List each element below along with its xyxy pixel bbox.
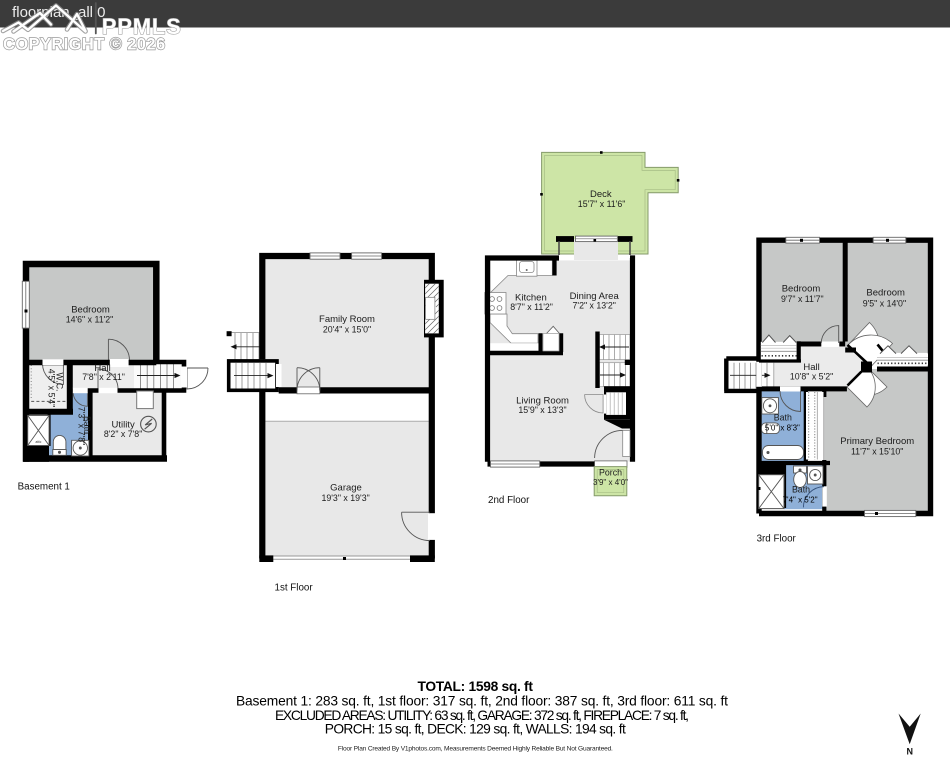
svg-text:20'4" x 15'0": 20'4" x 15'0"	[323, 325, 371, 335]
svg-text:4'5" x 5'4": 4'5" x 5'4"	[47, 369, 57, 407]
svg-text:COPYRIGHT © 2026: COPYRIGHT © 2026	[3, 35, 166, 53]
svg-text:Bedroom: Bedroom	[866, 288, 905, 299]
svg-text:19'3" x 19'3": 19'3" x 19'3"	[321, 493, 369, 503]
svg-text:7'4" x 5'2": 7'4" x 5'2"	[783, 495, 818, 504]
svg-text:Porch: Porch	[599, 468, 622, 478]
svg-text:8'2" x 7'8": 8'2" x 7'8"	[104, 429, 142, 439]
svg-text:N: N	[907, 747, 914, 757]
svg-text:9'5" x 14'0": 9'5" x 14'0"	[863, 298, 906, 308]
svg-text:PORCH: 15 sq. ft, DECK: 129 sq: PORCH: 15 sq. ft, DECK: 129 sq. ft, WALL…	[325, 722, 626, 737]
svg-text:2nd Floor: 2nd Floor	[488, 495, 530, 506]
svg-text:Family Room: Family Room	[319, 314, 375, 325]
svg-text:Bedroom: Bedroom	[782, 284, 821, 295]
svg-text:7'2" x 13'2": 7'2" x 13'2"	[573, 301, 616, 311]
svg-text:8'7" x 11'2": 8'7" x 11'2"	[510, 302, 553, 312]
svg-text:14'6" x 11'2": 14'6" x 11'2"	[66, 315, 114, 325]
svg-text:7'3" x 7'8": 7'3" x 7'8"	[77, 407, 87, 445]
svg-text:Garage: Garage	[330, 483, 362, 494]
svg-text:Bath: Bath	[774, 413, 792, 423]
svg-text:TOTAL: 1598 sq. ft: TOTAL: 1598 sq. ft	[417, 679, 533, 694]
svg-text:3'9" x 4'0": 3'9" x 4'0"	[593, 478, 628, 487]
svg-text:Basement 1: 283 sq. ft, 1st fl: Basement 1: 283 sq. ft, 1st floor: 317 s…	[236, 694, 728, 709]
svg-text:15'9" x 13'3": 15'9" x 13'3"	[518, 405, 566, 415]
svg-text:5'0" x 8'3": 5'0" x 8'3"	[765, 423, 800, 432]
svg-text:7'8" x 2'11": 7'8" x 2'11"	[82, 372, 125, 382]
svg-text:Bath: Bath	[792, 485, 810, 495]
svg-text:Basement 1: Basement 1	[18, 482, 70, 493]
svg-text:attic: attic	[35, 440, 41, 444]
svg-text:15'7" x 11'6": 15'7" x 11'6"	[578, 199, 626, 209]
svg-text:1st Floor: 1st Floor	[275, 583, 314, 594]
svg-text:Primary Bedroom: Primary Bedroom	[840, 436, 914, 447]
svg-text:11'7" x 15'10": 11'7" x 15'10"	[851, 446, 904, 456]
svg-text:Floor Plan Created By V1photos: Floor Plan Created By V1photos.com, Meas…	[338, 746, 613, 753]
svg-text:9'7" x 11'7": 9'7" x 11'7"	[781, 294, 824, 304]
svg-text:3rd Floor: 3rd Floor	[757, 534, 797, 545]
svg-text:10'8" x 5'2": 10'8" x 5'2"	[790, 372, 833, 382]
